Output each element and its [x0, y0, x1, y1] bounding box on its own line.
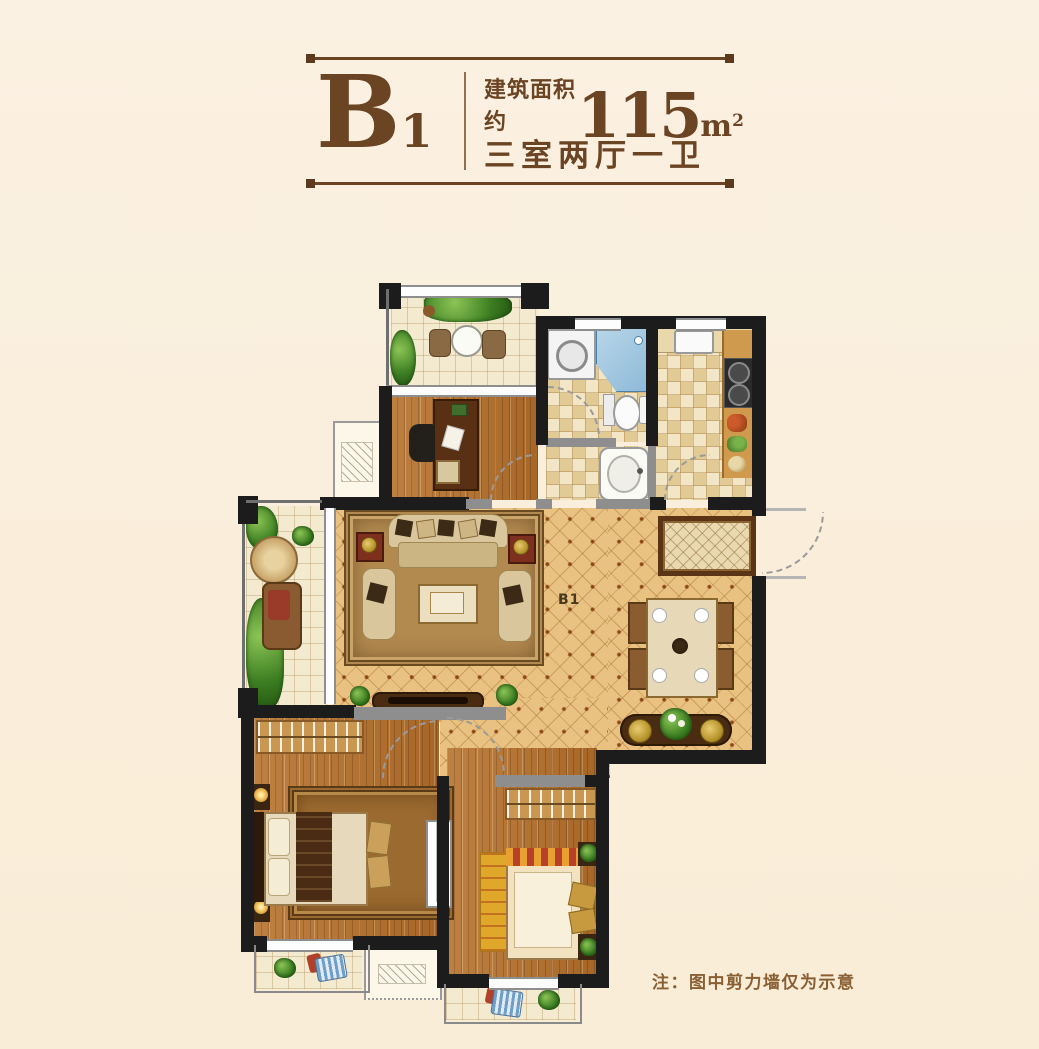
toilet-bowl	[613, 395, 641, 431]
washer-drum	[556, 340, 588, 372]
exterior-wall	[241, 710, 254, 946]
pillow	[268, 858, 290, 896]
title-rule-bottom-left-cap	[306, 179, 315, 188]
wall	[241, 705, 356, 718]
white-flower	[668, 714, 676, 722]
sofa-cushion	[416, 519, 436, 539]
wall	[437, 776, 449, 988]
decor-bowl	[628, 719, 652, 743]
title-rule-top-left-cap	[306, 54, 315, 63]
partition-wall	[466, 499, 492, 509]
balcony-chair	[482, 330, 506, 359]
wall	[379, 497, 469, 510]
floor-cushion	[568, 908, 597, 934]
second-balcony-rail	[444, 984, 582, 1024]
table-lamp	[361, 537, 377, 553]
exterior-wall	[752, 576, 766, 764]
window-sill	[386, 385, 540, 397]
sofa-cushion	[479, 519, 497, 537]
unit-letter: B	[316, 53, 401, 171]
plant	[496, 684, 518, 706]
decor-bowl	[700, 719, 724, 743]
food-bowl	[727, 414, 747, 432]
sofa-seat	[398, 542, 498, 568]
vegetables	[727, 436, 747, 452]
plant	[390, 330, 416, 386]
wardrobe	[256, 720, 364, 754]
wall	[708, 497, 766, 510]
armchair	[498, 570, 532, 642]
bench-cushion	[366, 855, 391, 889]
armchair	[362, 568, 396, 640]
window	[401, 285, 521, 298]
wardrobe	[505, 788, 597, 820]
tv	[388, 697, 468, 704]
plan-watermark: B1	[558, 592, 580, 608]
partition-wall	[648, 446, 656, 500]
patio-table	[250, 536, 298, 584]
place-setting	[694, 608, 709, 623]
title-rule-top-right-cap	[725, 54, 734, 63]
sofa-cushion	[395, 519, 414, 538]
basin-faucet	[637, 468, 643, 474]
plant	[292, 526, 314, 546]
bathroom-partition-wall	[546, 438, 616, 447]
area-exponent: 2	[732, 111, 744, 131]
exterior-wall	[752, 316, 766, 516]
stool	[436, 460, 460, 484]
ac-unit-mark	[378, 964, 426, 984]
window	[676, 318, 726, 331]
stove-burner	[728, 384, 750, 406]
wall	[650, 497, 666, 510]
kitchen-sink	[674, 330, 714, 354]
balcony-table	[451, 325, 483, 357]
flower-arrangement	[660, 708, 692, 740]
partition-wall	[495, 775, 597, 787]
place-setting	[694, 668, 709, 683]
wall	[536, 320, 548, 445]
desk-chair	[409, 424, 435, 462]
dining-chair	[628, 648, 648, 690]
title-rule-bottom	[310, 182, 730, 185]
bed-header-blanket	[506, 848, 578, 866]
pillow	[268, 818, 290, 856]
floor-cushion	[568, 882, 598, 911]
unit-number: 1	[401, 104, 433, 158]
floorplan-poster: B1 建筑面积约 115 m 2 三室两厅一卫	[0, 0, 1039, 1049]
door-jamb	[766, 576, 806, 579]
book	[451, 404, 467, 416]
ac-unit-mark	[341, 442, 373, 482]
wall-pillar	[521, 283, 549, 309]
balcony-chair	[429, 329, 451, 357]
bedside-lamp	[254, 788, 268, 802]
shower-drain	[634, 336, 643, 345]
window	[575, 318, 621, 331]
table-lamp	[513, 539, 529, 555]
unit-title: B1	[316, 62, 433, 162]
balcony-glazing	[246, 500, 322, 503]
bed-headboard	[254, 812, 264, 902]
coffee-table-tray	[430, 592, 464, 614]
sideboard	[658, 516, 756, 576]
place-setting	[652, 608, 667, 623]
centerpiece	[672, 638, 688, 654]
balcony-sliding-door	[324, 508, 336, 704]
sofa-cushion	[458, 519, 479, 540]
stove-burner	[728, 362, 750, 384]
partition-wall	[536, 499, 552, 509]
plant	[350, 686, 370, 706]
exterior-wall	[600, 750, 766, 764]
balcony-glazing	[386, 289, 389, 387]
white-flower	[678, 720, 685, 727]
place-setting	[652, 668, 667, 683]
wall-pillar	[379, 283, 401, 309]
partition-wall	[596, 499, 652, 509]
title-rule-bottom-right-cap	[725, 179, 734, 188]
wash-basin	[607, 455, 641, 493]
bench-cushion	[366, 821, 392, 856]
prep-bowl	[728, 456, 746, 472]
lounge-cushion	[268, 590, 290, 620]
disclaimer-note: 注：图中剪力墙仅为示意	[652, 968, 856, 993]
dining-chair	[628, 602, 648, 644]
wall	[379, 386, 392, 510]
sofa-cushion	[437, 519, 455, 537]
door-jamb	[766, 508, 806, 511]
partition-wall	[354, 707, 506, 720]
layout-spec: 三室两厅一卫	[484, 130, 706, 175]
bed-duvet	[514, 872, 572, 948]
master-balcony-rail	[254, 945, 370, 993]
wall	[585, 775, 609, 787]
balcony-glazing	[242, 524, 245, 688]
flower-pot	[423, 305, 435, 317]
wall	[646, 320, 658, 446]
armchair-cushion	[502, 584, 523, 605]
bed-blanket	[296, 812, 332, 902]
title-divider	[464, 72, 466, 170]
